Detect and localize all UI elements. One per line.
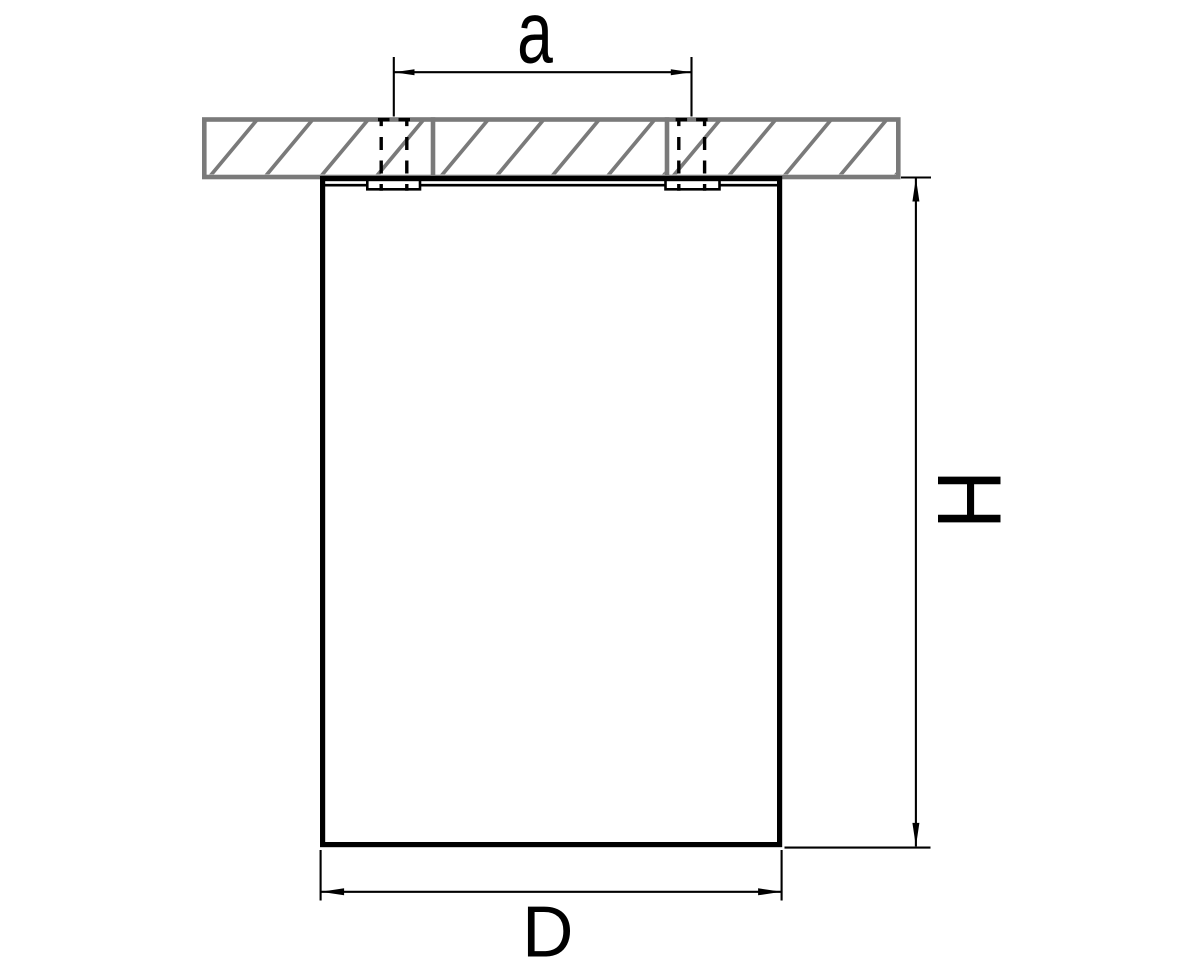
svg-text:D: D [522,892,573,973]
svg-text:a: a [517,0,553,82]
svg-text:H: H [918,470,1019,529]
